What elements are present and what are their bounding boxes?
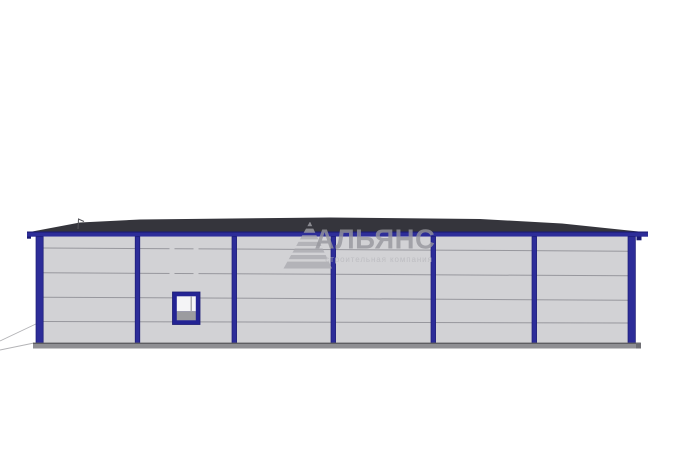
- column: [532, 237, 537, 344]
- seam-break: [194, 273, 199, 275]
- corner-column-left: [36, 237, 43, 344]
- window-lower-panel: [177, 311, 196, 320]
- render-canvas: АЛЬЯНС строительная компания: [0, 0, 700, 474]
- window-mullion: [191, 296, 193, 311]
- foundation-top-edge: [33, 343, 640, 344]
- fascia-right-cap: [637, 237, 642, 241]
- column: [232, 237, 237, 344]
- ground-line: [0, 323, 39, 342]
- fascia-left-cap: [27, 237, 31, 239]
- watermark-tagline-text: строительная компания: [325, 255, 433, 264]
- watermark-brand-text: АЛЬЯНС: [315, 224, 436, 255]
- building-elevation: АЛЬЯНС строительная компания: [0, 0, 700, 474]
- ground-line: [0, 343, 34, 350]
- seam-break: [170, 248, 175, 250]
- seam-break: [170, 272, 175, 274]
- window-glass: [177, 296, 196, 311]
- corner-column-right: [628, 237, 635, 344]
- foundation-right-cap: [636, 343, 641, 349]
- seam-break: [194, 248, 199, 250]
- foundation-strip: [33, 343, 641, 349]
- column: [135, 237, 140, 344]
- window: [173, 292, 201, 325]
